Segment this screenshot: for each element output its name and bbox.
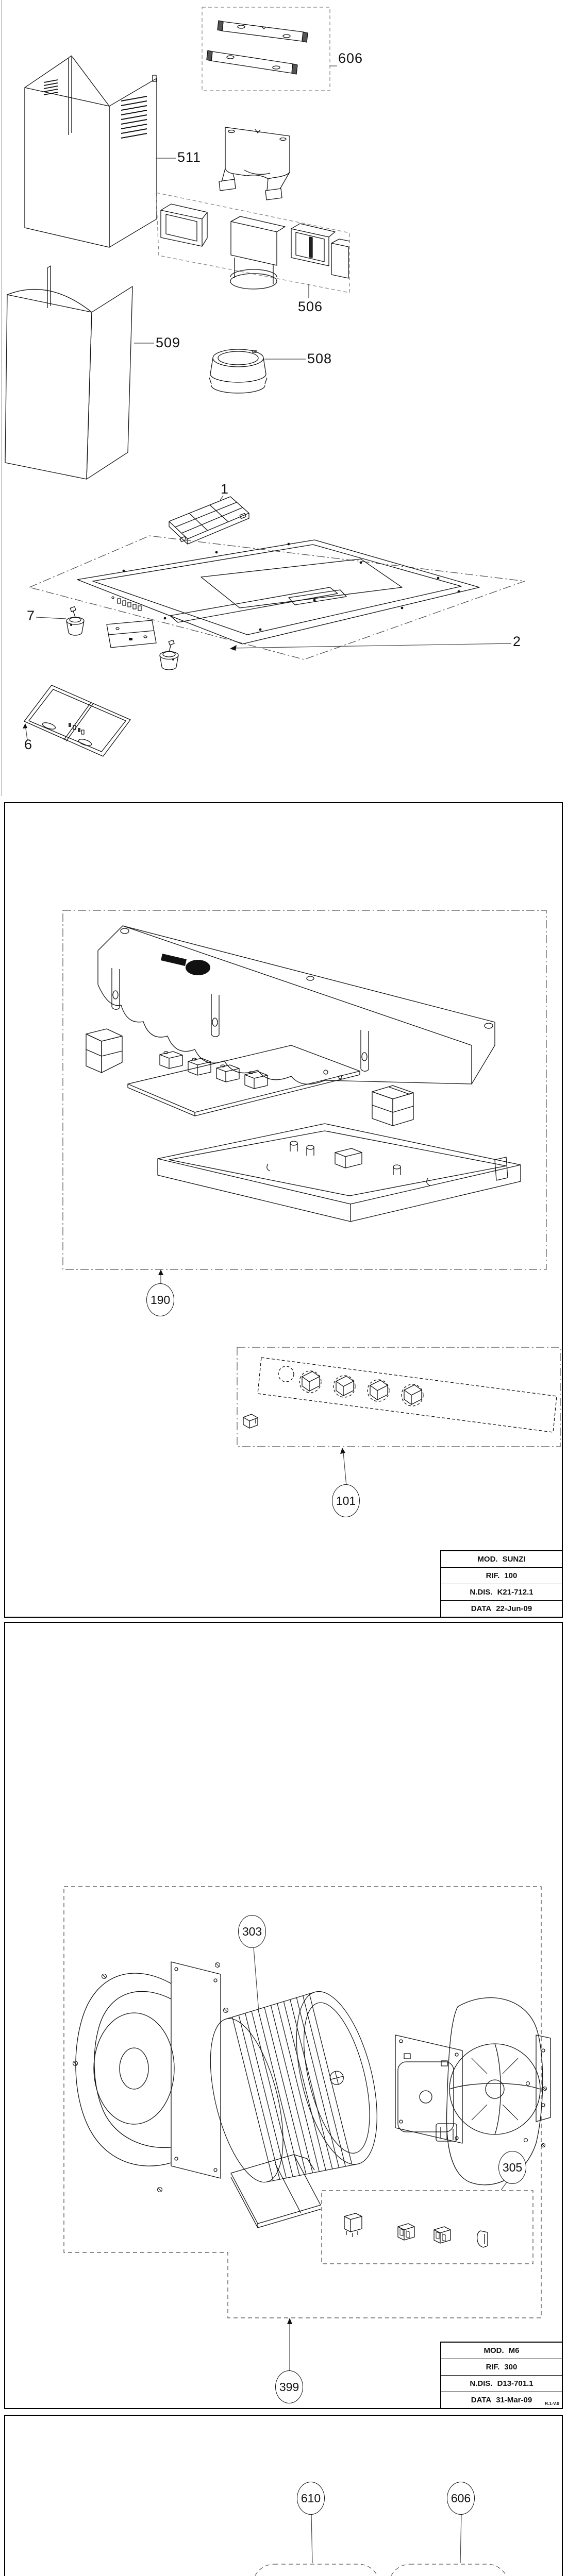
group-boundary-190	[63, 910, 546, 1269]
table-row-ndis: N.DIS.D13-701.1	[441, 2375, 562, 2392]
panel600-drawing	[5, 2416, 562, 2576]
title-block-300: MOD.M6 RIF.300 N.DIS.D13-701.1 DATA31-Ma…	[440, 2342, 563, 2409]
reducer-ring-508-drawing	[209, 349, 267, 393]
visor-frame-drawing	[24, 685, 130, 756]
section1-drawing	[0, 0, 567, 802]
callout-101: 101	[332, 1484, 360, 1517]
motor-drawing	[395, 2035, 462, 2143]
callout-606-bottom: 606	[447, 2482, 475, 2515]
callout-508: 508	[307, 352, 332, 366]
hood-canopy-drawing	[29, 536, 525, 659]
table-row-mod: MOD.SUNZI	[441, 1551, 562, 1567]
callout-610: 610	[297, 2482, 325, 2515]
panel600-leader-lines	[199, 2514, 519, 2576]
screw-icons	[73, 1963, 228, 2192]
table-row-data: DATA22-Jun-09	[441, 1600, 562, 1617]
outlet-duct-drawing	[231, 2155, 321, 2228]
callout-303-number: 303	[242, 1926, 262, 1938]
rif-value: 300	[504, 2363, 517, 2371]
blower-housing-left-drawing	[73, 1962, 228, 2192]
table-row-rif: RIF.300	[441, 2359, 562, 2375]
relay-box-drawing	[372, 1086, 413, 1126]
panel100-drawing	[5, 803, 562, 1617]
impeller-drawing	[195, 1984, 392, 2194]
control-box-cover-drawing	[98, 926, 495, 1084]
callout-399: 399	[275, 2370, 303, 2403]
lamp-drawings	[66, 606, 178, 670]
lamp-bracket-plate-drawing	[107, 620, 156, 648]
panel-rif-600: MOD.EASY CUBE TRASF.ELETTR. RIF.600 N.DI…	[4, 2415, 563, 2576]
callout-509: 509	[156, 336, 180, 350]
callout-190: 190	[146, 1283, 174, 1316]
mod-value: SUNZI	[503, 1555, 526, 1564]
callout-305-number: 305	[503, 2162, 522, 2174]
mounting-bars-606-box	[202, 7, 330, 91]
callout-6: 6	[24, 738, 32, 752]
rif-label: RIF.	[486, 1571, 500, 1580]
wall-bracket-drawing	[219, 127, 290, 200]
control-box-base-drawing	[158, 1124, 521, 1222]
ndis-value: K21-712.1	[497, 1588, 533, 1597]
ndis-label: N.DIS.	[470, 2379, 492, 2388]
section1-leader-lines	[23, 66, 511, 740]
callout-190-number: 190	[151, 1294, 170, 1306]
data-label: DATA	[471, 1604, 491, 1613]
group-boundary-399	[64, 1887, 541, 2318]
callout-7: 7	[27, 609, 35, 623]
exploded-parts-diagram-sheet: 606 511 506 509 508 1 7 2 6	[0, 0, 567, 2576]
callout-399-number: 399	[279, 2381, 299, 2393]
table-row-rif: RIF.100	[441, 1567, 562, 1584]
callout-506: 506	[298, 300, 323, 314]
ndis-value: D13-701.1	[497, 2379, 533, 2388]
title-block-100: MOD.SUNZI RIF.100 N.DIS.K21-712.1 DATA22…	[440, 1550, 563, 1618]
duct-adapters-506-group	[156, 193, 349, 293]
lower-chimney-drawing	[5, 266, 132, 479]
panel-rif-100: MOD.SUNZI RIF.100 N.DIS.K21-712.1 DATA22…	[4, 802, 563, 1618]
callout-1: 1	[221, 482, 229, 496]
mod-value: M6	[509, 2346, 520, 2355]
callout-303: 303	[238, 1915, 266, 1948]
switch-strip-101-group	[237, 1347, 560, 1447]
table-row-ndis: N.DIS.K21-712.1	[441, 1584, 562, 1600]
rif-label: RIF.	[486, 2363, 500, 2371]
callout-511: 511	[177, 150, 201, 164]
connector-kit-305-group	[322, 2191, 533, 2264]
mod-label: MOD.	[477, 1555, 497, 1564]
callout-2: 2	[513, 635, 521, 649]
panel300-leader-lines	[254, 1947, 508, 2374]
callout-606-number: 606	[451, 2493, 471, 2504]
hardware-kit-610-boundary	[253, 2564, 380, 2576]
hanger-kit-606-boundary	[389, 2564, 509, 2576]
callout-305: 305	[498, 2151, 526, 2184]
data-label: DATA	[471, 2396, 491, 2404]
revision-note: R.1-V.0	[545, 2401, 559, 2406]
rif-value: 100	[504, 1571, 517, 1580]
terminal-block-drawing	[86, 1029, 122, 1073]
panel300-drawing	[5, 1623, 562, 2408]
table-row-data: DATA31-Mar-09R.1-V.0	[441, 2392, 562, 2408]
callout-606-top: 606	[338, 52, 363, 65]
data-value: 31-Mar-09	[496, 2396, 532, 2404]
table-row-mod: MOD.M6	[441, 2343, 562, 2359]
upper-chimney-drawing	[25, 56, 157, 247]
ndis-label: N.DIS.	[470, 1588, 492, 1597]
panel-rif-300: MOD.M6 RIF.300 N.DIS.D13-701.1 DATA31-Ma…	[4, 1622, 563, 2409]
callout-101-number: 101	[336, 1495, 356, 1507]
callout-610-number: 610	[301, 2493, 321, 2504]
grease-filter-drawing	[169, 497, 249, 544]
mod-label: MOD.	[483, 2346, 504, 2355]
data-value: 22-Jun-09	[496, 1604, 532, 1613]
